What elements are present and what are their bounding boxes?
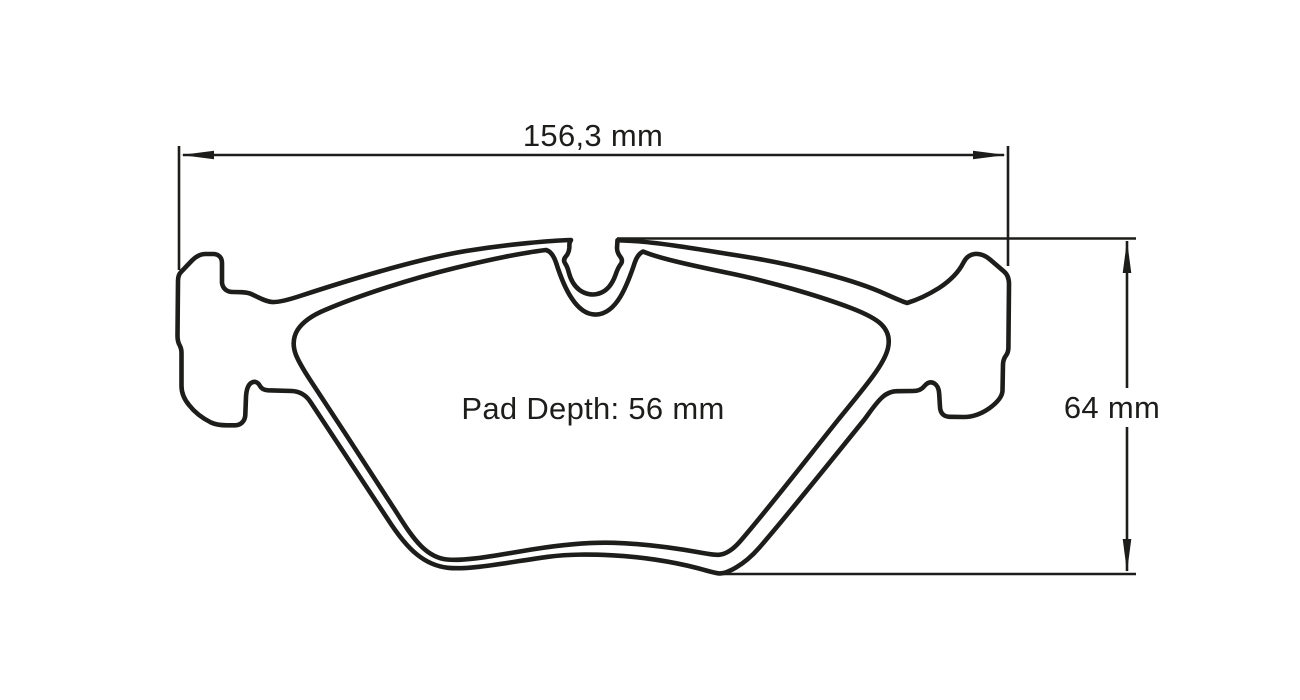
drawing-svg <box>0 0 1300 700</box>
arrowhead-right-icon <box>973 151 1006 160</box>
brake-pad-technical-drawing: 156,3 mm Pad Depth: 56 mm 64 mm <box>0 0 1300 700</box>
arrowhead-up-icon <box>1123 241 1132 274</box>
arrowhead-left-icon <box>181 151 214 160</box>
width-dimension-group <box>179 146 1008 270</box>
arrowhead-down-icon <box>1123 539 1132 572</box>
height-dimension-label: 64 mm <box>1064 391 1160 425</box>
pad-depth-label: Pad Depth: 56 mm <box>461 392 724 426</box>
width-dimension-label: 156,3 mm <box>523 119 663 153</box>
